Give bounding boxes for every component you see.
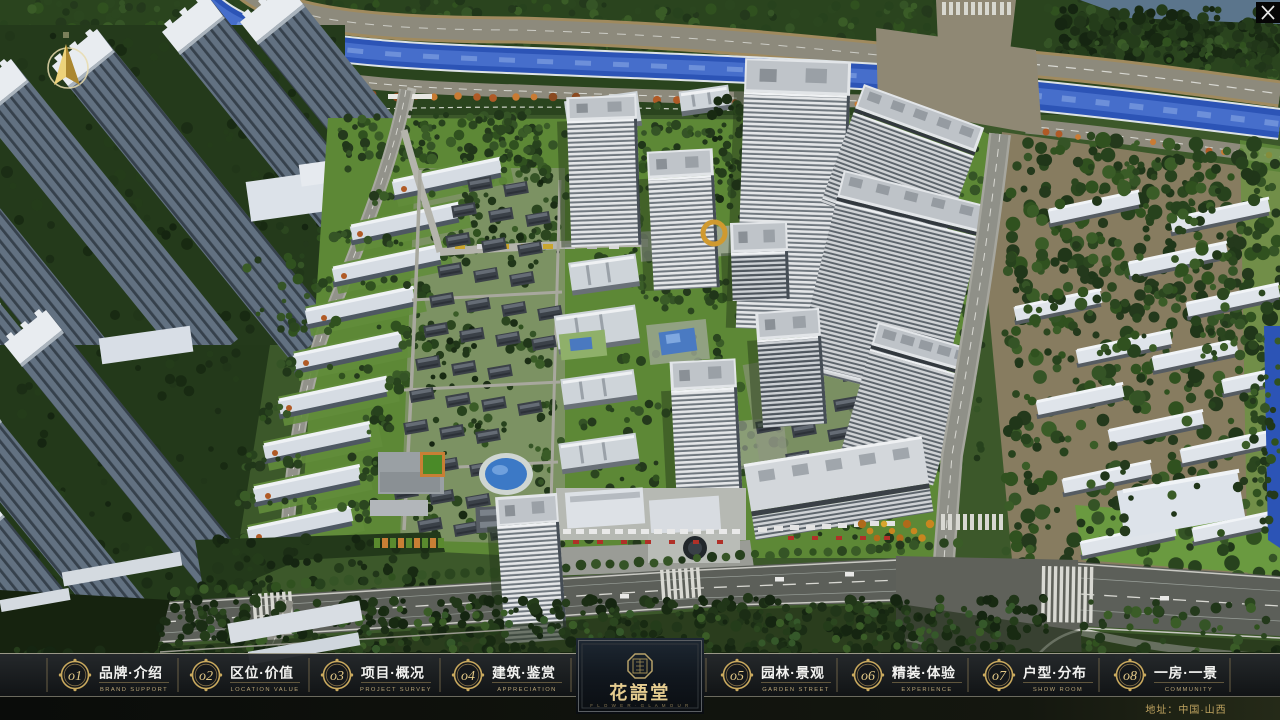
svg-text:PROJECT SURVEY: PROJECT SURVEY bbox=[360, 687, 432, 693]
svg-text:户型·分布: 户型·分布 bbox=[1023, 665, 1087, 681]
svg-text:o4: o4 bbox=[461, 669, 475, 684]
svg-text:项目·概况: 项目·概况 bbox=[361, 665, 425, 681]
svg-text:F L O W E R · G L A M O U R: F L O W E R · G L A M O U R bbox=[590, 703, 689, 708]
svg-text:APPRECIATION: APPRECIATION bbox=[497, 687, 557, 693]
svg-text:SHOW ROOM: SHOW ROOM bbox=[1033, 687, 1083, 693]
svg-text:区位·价值: 区位·价值 bbox=[230, 665, 294, 681]
svg-text:o5: o5 bbox=[730, 669, 744, 684]
svg-text:o3: o3 bbox=[330, 669, 344, 684]
svg-text:BRAND SUPPORT: BRAND SUPPORT bbox=[100, 687, 168, 693]
svg-text:LOCATION VALUE: LOCATION VALUE bbox=[231, 687, 300, 693]
svg-text:EXPERIENCE: EXPERIENCE bbox=[901, 687, 952, 693]
svg-text:o1: o1 bbox=[68, 669, 82, 684]
svg-text:GARDEN STREET: GARDEN STREET bbox=[762, 687, 829, 693]
svg-text:o7: o7 bbox=[992, 669, 1007, 684]
svg-text:COMMUNITY: COMMUNITY bbox=[1165, 687, 1213, 693]
svg-text:o6: o6 bbox=[861, 669, 875, 684]
svg-text:品牌·介绍: 品牌·介绍 bbox=[99, 665, 163, 681]
svg-text:一房·一景: 一房·一景 bbox=[1154, 665, 1218, 681]
svg-text:建筑·鉴赏: 建筑·鉴赏 bbox=[492, 665, 556, 681]
svg-text:o8: o8 bbox=[1123, 669, 1137, 684]
svg-text:o2: o2 bbox=[199, 669, 213, 684]
svg-text:花語堂: 花語堂 bbox=[609, 682, 671, 703]
svg-text:精装·体验: 精装·体验 bbox=[892, 665, 956, 681]
svg-text:园林·景观: 园林·景观 bbox=[761, 665, 825, 681]
svg-text:地址：中国·山西: 地址：中国·山西 bbox=[1145, 703, 1226, 716]
